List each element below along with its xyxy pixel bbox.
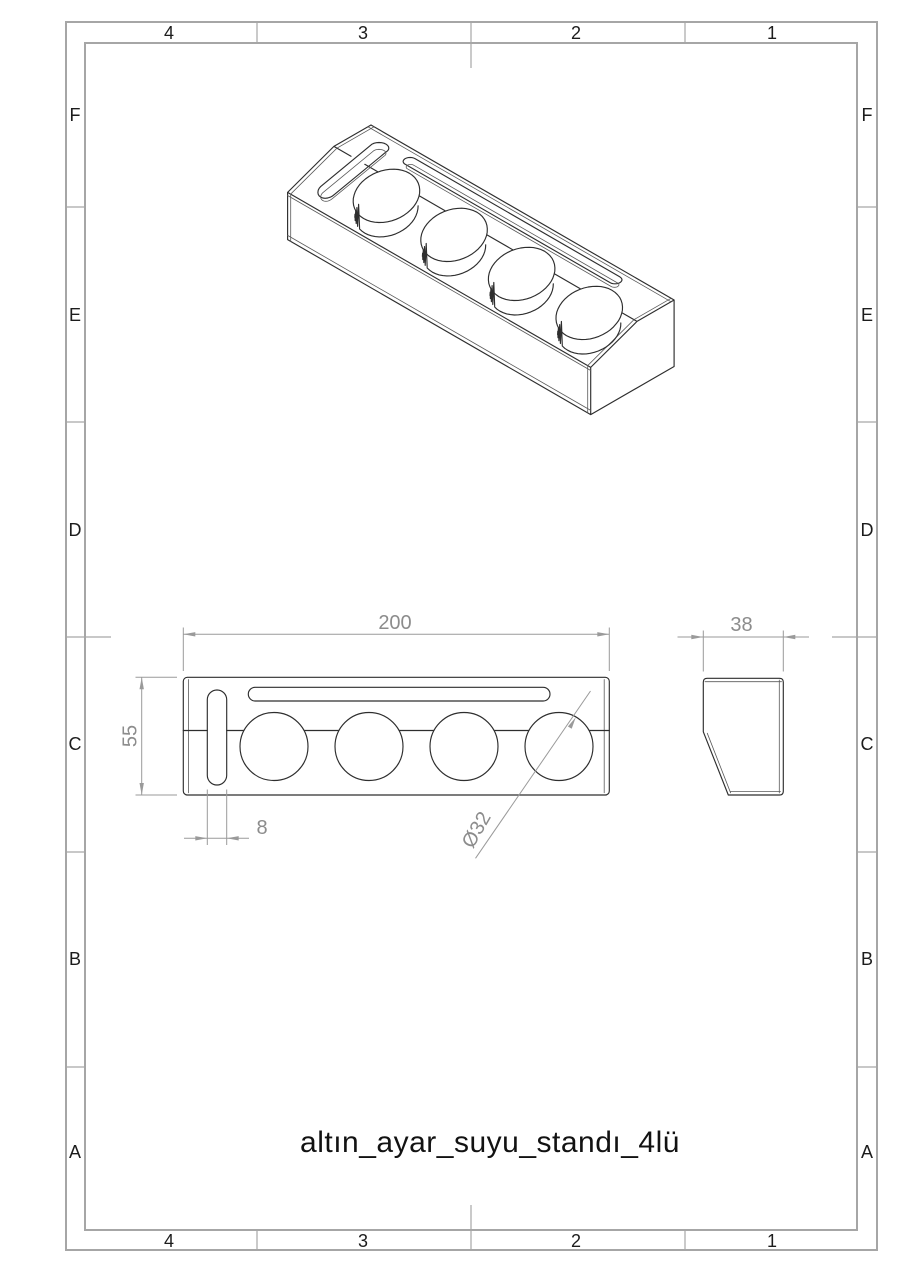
arrowhead	[227, 836, 239, 840]
small-slot	[207, 690, 226, 785]
zone-label-col-bottom-1: 1	[767, 1231, 777, 1251]
zone-label-row-left-D: D	[69, 520, 82, 540]
hole-3	[430, 713, 498, 781]
zone-label-col-bottom-4: 4	[164, 1231, 174, 1251]
hole-4	[525, 713, 593, 781]
dim-height-text: 38	[730, 614, 752, 636]
zone-label-row-left-E: E	[69, 305, 81, 325]
iso-small-slot	[318, 143, 389, 199]
zone-label-row-left-C: C	[69, 734, 82, 754]
dim-hole-diameter: Ø32	[458, 691, 591, 858]
iso-hole-rim-2	[421, 208, 488, 261]
top-view	[183, 677, 609, 795]
zone-label-row-right-A: A	[861, 1142, 873, 1162]
iso-long-slot	[403, 158, 622, 284]
zone-label-row-left-A: A	[69, 1142, 81, 1162]
iso-small-slot-inner	[321, 149, 386, 201]
zone-label-col-bottom-2: 2	[571, 1231, 581, 1251]
zone-label-col-top-1: 1	[767, 23, 777, 43]
side-view-outline	[703, 678, 783, 795]
dim-height: 38	[678, 614, 810, 672]
iso-hole-rim-4	[556, 286, 623, 339]
chamfer-tangent	[707, 733, 730, 793]
dim-length-text: 200	[378, 612, 411, 634]
iso-hole-bottom-3	[490, 282, 553, 315]
dim-slot-width: 8	[184, 790, 268, 846]
isometric-view	[288, 125, 674, 415]
dimensions: 200 55 8 Ø32	[120, 612, 810, 858]
iso-hole-rim-1	[353, 169, 420, 222]
iso-hole-bottom-1	[355, 204, 418, 237]
arrowhead	[783, 635, 795, 639]
zone-label-row-left-B: B	[69, 949, 81, 969]
arrowhead	[597, 632, 609, 636]
dim-slot-width-text: 8	[256, 817, 267, 839]
arrowhead	[691, 635, 703, 639]
arrowhead	[140, 783, 144, 795]
zone-label-row-right-C: C	[861, 734, 874, 754]
iso-tangent-edges	[288, 127, 671, 413]
zone-label-row-right-F: F	[862, 105, 873, 125]
zone-label-col-top-2: 2	[571, 23, 581, 43]
leader-line	[476, 691, 591, 858]
dim-length: 200	[183, 612, 609, 671]
drawing-sheet: 4 3 2 1 4 3 2 1 F E D C B A F E D C B A	[0, 0, 900, 1273]
arrowhead	[140, 677, 144, 689]
zone-label-row-right-D: D	[861, 520, 874, 540]
drawing-sheet-svg: 4 3 2 1 4 3 2 1 F E D C B A F E D C B A	[0, 0, 900, 1273]
hole-2	[335, 713, 403, 781]
zone-label-row-left-F: F	[70, 105, 81, 125]
iso-hole-rim-3	[488, 247, 555, 300]
arrowhead	[195, 836, 207, 840]
part-title: altın_ayar_suyu_standı_4lü	[300, 1126, 680, 1159]
iso-hole-bottom-2	[422, 243, 485, 276]
long-slot	[248, 687, 550, 701]
arrowhead	[183, 632, 195, 636]
zone-label-col-top-4: 4	[164, 23, 174, 43]
zone-label-row-right-B: B	[861, 949, 873, 969]
side-view	[703, 678, 783, 795]
zone-label-row-right-E: E	[861, 305, 873, 325]
dim-depth: 55	[120, 677, 178, 795]
zone-label-col-bottom-3: 3	[358, 1231, 368, 1251]
iso-hole-bottom-4	[558, 321, 621, 354]
hole-1	[240, 713, 308, 781]
dim-depth-text: 55	[120, 725, 142, 747]
dim-hole-diameter-text: Ø32	[458, 808, 496, 852]
zone-label-col-top-3: 3	[358, 23, 368, 43]
